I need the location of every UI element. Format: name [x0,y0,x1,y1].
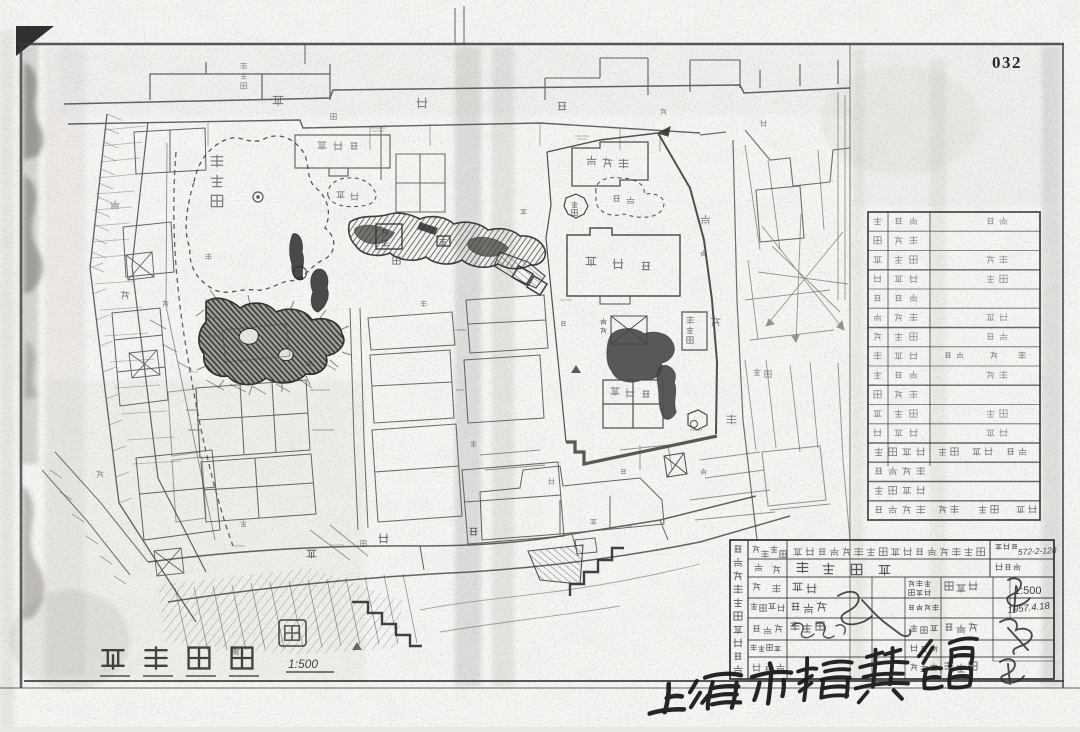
svg-text:1:500: 1:500 [288,657,318,671]
svg-text:032: 032 [992,53,1022,72]
svg-text:572-2-128: 572-2-128 [1018,545,1057,557]
svg-text:1:500: 1:500 [1014,585,1042,597]
